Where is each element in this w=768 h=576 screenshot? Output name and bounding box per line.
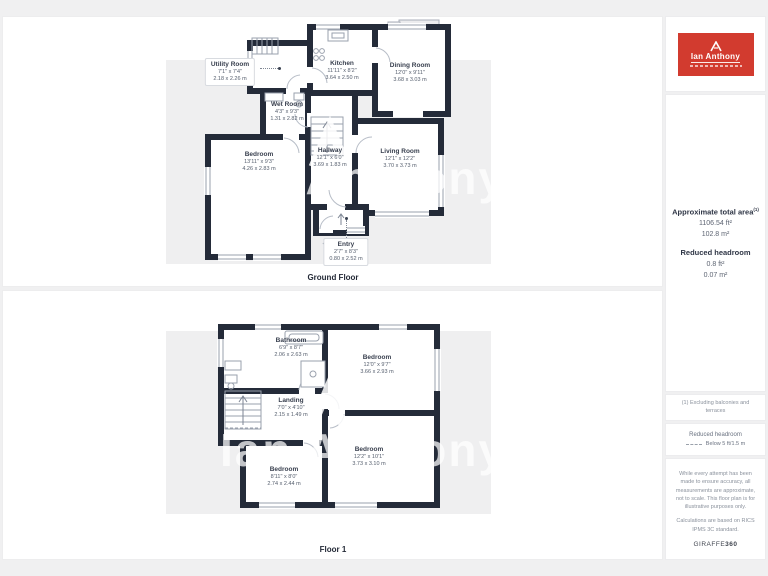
room-metric: 4.26 x 2.83 m — [242, 166, 275, 173]
room-name: Utility Room — [211, 61, 249, 69]
dashed-line-icon — [686, 444, 702, 445]
room-metric: 3.68 x 3.03 m — [390, 77, 430, 84]
room-label-living-room: Living Room 12'1" x 12'2" 3.70 x 3.73 m — [380, 148, 419, 170]
room-label-entry: Entry 2'7" x 8'3" 0.80 x 2.52 m — [323, 238, 368, 266]
approx-area-label: Approximate total area — [672, 207, 753, 216]
room-imperial: 12'1" x 6'0" — [313, 155, 346, 162]
room-name: Entry — [329, 241, 362, 249]
floor-title-floor1: Floor 1 — [320, 545, 347, 554]
agency-logo-box: Ian Anthony — [665, 16, 766, 92]
ground-floor-panel: Ian Anthony Utility Room 7'1" x 7'4" 2.1… — [2, 16, 663, 287]
room-label-bedroom-1: Bedroom 12'0" x 9'7" 3.66 x 2.93 m — [360, 354, 393, 376]
room-metric: 0.80 x 2.52 m — [329, 256, 362, 263]
legend-value: Below 5 ft/1.5 m — [706, 441, 745, 447]
brand-tagline-marks — [690, 65, 742, 67]
entry-leader-line — [346, 220, 347, 238]
giraffe-360-label: 360 — [725, 541, 737, 548]
approx-area-footnote-marker: (1) — [753, 207, 759, 212]
room-label-bathroom: Bathroom 6'9" x 8'7" 2.06 x 2.63 m — [274, 337, 307, 359]
room-metric: 3.73 x 3.10 m — [352, 461, 385, 468]
room-label-utility-room: Utility Room 7'1" x 7'4" 2.18 x 2.26 m — [205, 58, 255, 86]
legend-row: Below 5 ft/1.5 m — [686, 441, 745, 447]
room-label-dining-room: Dining Room 12'0" x 9'11" 3.68 x 3.03 m — [390, 62, 430, 84]
room-imperial: 2'7" x 8'3" — [329, 249, 362, 256]
utility-leader-line — [260, 68, 278, 69]
info-sidebar: Ian Anthony Approximate total area(1) 11… — [665, 16, 766, 562]
room-name: Kitchen — [325, 60, 358, 68]
room-metric: 3.70 x 3.73 m — [380, 163, 419, 170]
room-imperial: 4'3" x 9'3" — [270, 109, 303, 116]
disclaimer-box: While every attempt has been made to ens… — [665, 458, 766, 560]
room-name: Bathroom — [274, 337, 307, 345]
room-name: Bedroom — [352, 446, 385, 454]
room-imperial: 12'0" x 9'7" — [360, 362, 393, 369]
room-label-bedroom-2: Bedroom 12'2" x 10'1" 3.73 x 3.10 m — [352, 446, 385, 468]
giraffe360-brand: GIRAFFE360 — [693, 541, 737, 548]
room-imperial: 12'2" x 10'1" — [352, 454, 385, 461]
standard-text: Calculations are based on RICS IPMS 3C s… — [666, 517, 765, 534]
legend-box: Reduced headroom Below 5 ft/1.5 m — [665, 423, 766, 456]
room-name: Bedroom — [267, 466, 300, 474]
giraffe-label: GIRAFFE — [693, 541, 725, 548]
floor-title-ground: Ground Floor — [307, 273, 358, 282]
room-metric: 2.18 x 2.26 m — [211, 76, 249, 83]
room-imperial: 12'1" x 12'2" — [380, 156, 419, 163]
floor1-panel: Ian Anthony Bathroom 6'9" x 8'7" 2.06 x … — [2, 290, 663, 560]
room-imperial: 8'11" x 8'0" — [267, 474, 300, 481]
legend-title: Reduced headroom — [689, 432, 742, 438]
room-metric: 3.64 x 2.50 m — [325, 75, 358, 82]
room-name: Bedroom — [242, 151, 275, 159]
room-label-wet-room: Wet Room 4'3" x 9'3" 1.31 x 2.82 m — [270, 101, 303, 123]
room-metric: 3.69 x 1.83 m — [313, 162, 346, 169]
room-name: Wet Room — [270, 101, 303, 109]
room-imperial: 11'11" x 8'2" — [325, 68, 358, 75]
room-metric: 2.74 x 2.44 m — [267, 481, 300, 488]
entry-leader-dot — [345, 217, 348, 220]
room-name: Dining Room — [390, 62, 430, 70]
total-area-ft: 1106.54 ft² — [699, 220, 732, 227]
room-label-hallway: Hallway 12'1" x 6'0" 3.69 x 1.83 m — [313, 147, 346, 169]
room-metric: 2.06 x 2.63 m — [274, 352, 307, 359]
room-metric: 3.66 x 2.93 m — [360, 369, 393, 376]
disclaimer-text: While every attempt has been made to ens… — [666, 470, 765, 511]
room-label-kitchen: Kitchen 11'11" x 8'2" 3.64 x 2.50 m — [325, 60, 358, 82]
room-imperial: 7'1" x 7'4" — [211, 69, 249, 76]
utility-leader-dot — [278, 67, 281, 70]
room-metric: 2.15 x 1.49 m — [274, 412, 307, 419]
ian-anthony-logo: Ian Anthony — [678, 33, 754, 76]
room-imperial: 13'11" x 9'3" — [242, 159, 275, 166]
room-metric: 1.31 x 2.82 m — [270, 116, 303, 123]
total-area-m: 102.8 m² — [702, 231, 730, 238]
room-name: Hallway — [313, 147, 346, 155]
approx-area-title: Approximate total area(1) — [672, 207, 759, 217]
room-label-bedroom: Bedroom 13'11" x 9'3" 4.26 x 2.83 m — [242, 151, 275, 173]
excluding-note: (1) Excluding balconies and terraces — [666, 400, 765, 415]
room-imperial: 7'0" x 4'10" — [274, 405, 307, 412]
room-name: Bedroom — [360, 354, 393, 362]
reduced-headroom-m: 0.07 m² — [704, 272, 728, 279]
room-name: Landing — [274, 397, 307, 405]
area-summary-box: Approximate total area(1) 1106.54 ft² 10… — [665, 94, 766, 392]
reduced-headroom-ft: 0.8 ft² — [707, 261, 725, 268]
brand-name: Ian Anthony — [691, 52, 740, 63]
room-label-landing: Landing 7'0" x 4'10" 2.15 x 1.49 m — [274, 397, 307, 419]
room-name: Living Room — [380, 148, 419, 156]
room-imperial: 6'9" x 8'7" — [274, 345, 307, 352]
reduced-headroom-title: Reduced headroom — [680, 248, 750, 257]
room-label-bedroom-3: Bedroom 8'11" x 8'0" 2.74 x 2.44 m — [267, 466, 300, 488]
floor1-plan — [3, 291, 662, 559]
footnote-box: (1) Excluding balconies and terraces — [665, 394, 766, 421]
room-imperial: 12'0" x 9'11" — [390, 70, 430, 77]
brand-a-icon — [709, 41, 723, 52]
